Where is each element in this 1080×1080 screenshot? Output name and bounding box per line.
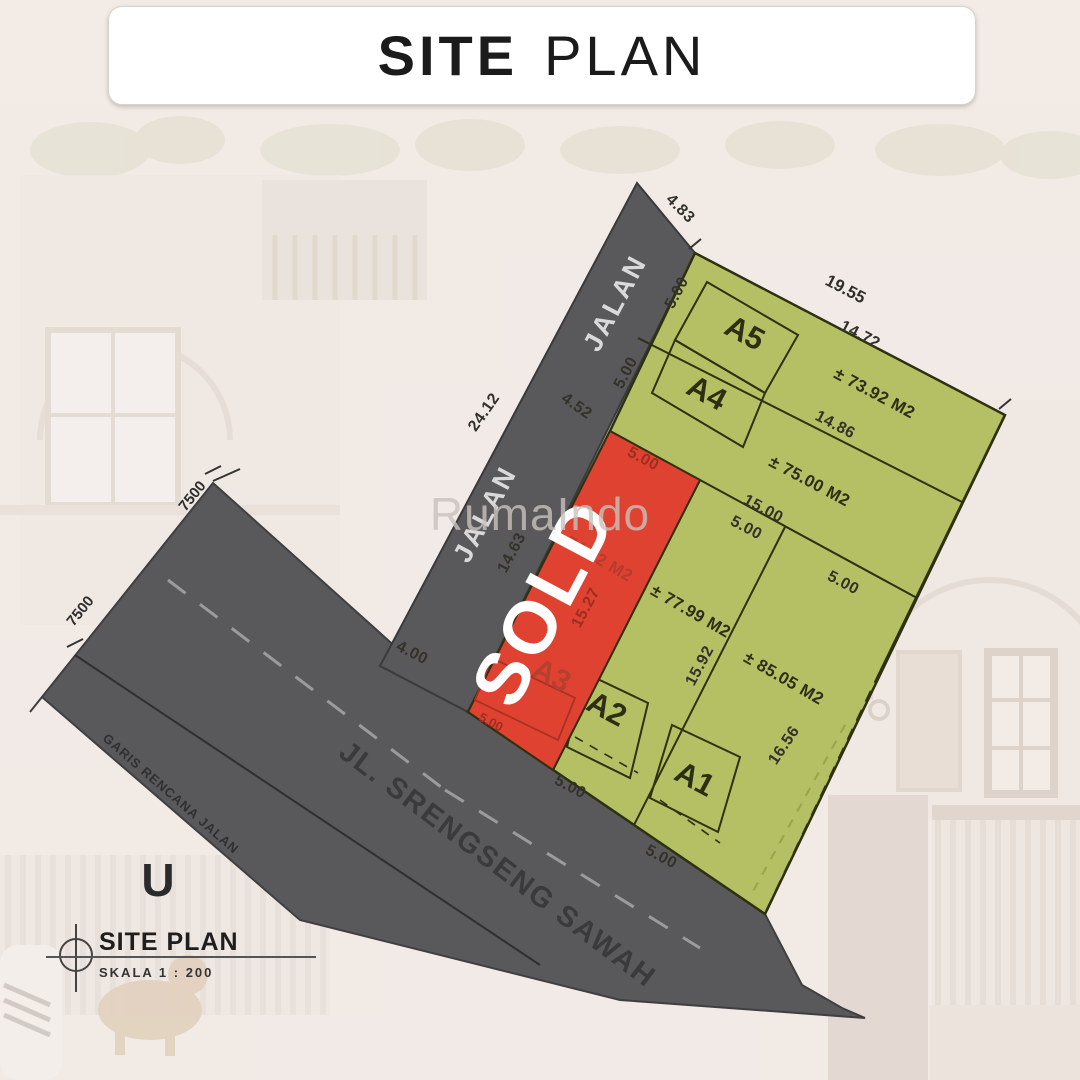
watermark: RumaIndo — [430, 487, 650, 541]
north-indicator: U — [141, 854, 174, 906]
title-word-regular: PLAN — [544, 23, 706, 88]
legend-scale: SKALA 1 : 200 — [99, 965, 213, 980]
title-word-bold: SITE — [378, 23, 518, 88]
legend-title: SITE PLAN — [99, 928, 239, 956]
site-plan-page: { "title": {"word1": "SITE", "word2": "P… — [0, 0, 1080, 1080]
title-card: SITE PLAN — [108, 6, 976, 105]
